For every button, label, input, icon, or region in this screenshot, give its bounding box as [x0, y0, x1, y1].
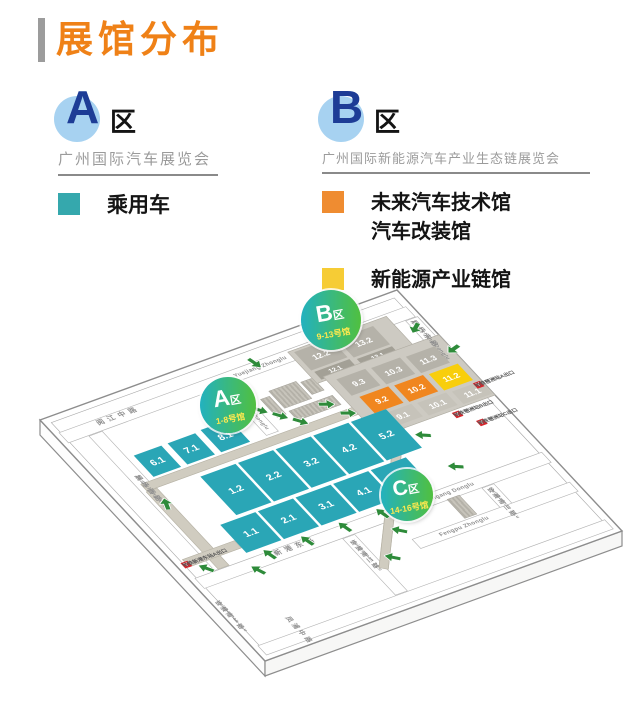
entrance-arrow-icon	[339, 408, 358, 418]
entrance-arrow-icon	[414, 430, 432, 441]
poster-page: 展馆分布 A 区 广州国际汽车展览会 乘用车 B 区 广州国际新能源汽车产业生态…	[0, 0, 641, 708]
entrance-arrow-icon	[446, 461, 464, 472]
entrance-arrow-icon	[317, 399, 336, 409]
venue-map: 12.2 13.2 12.1 13.1 9.3 10.3 11.3 9.2 10…	[0, 0, 641, 708]
